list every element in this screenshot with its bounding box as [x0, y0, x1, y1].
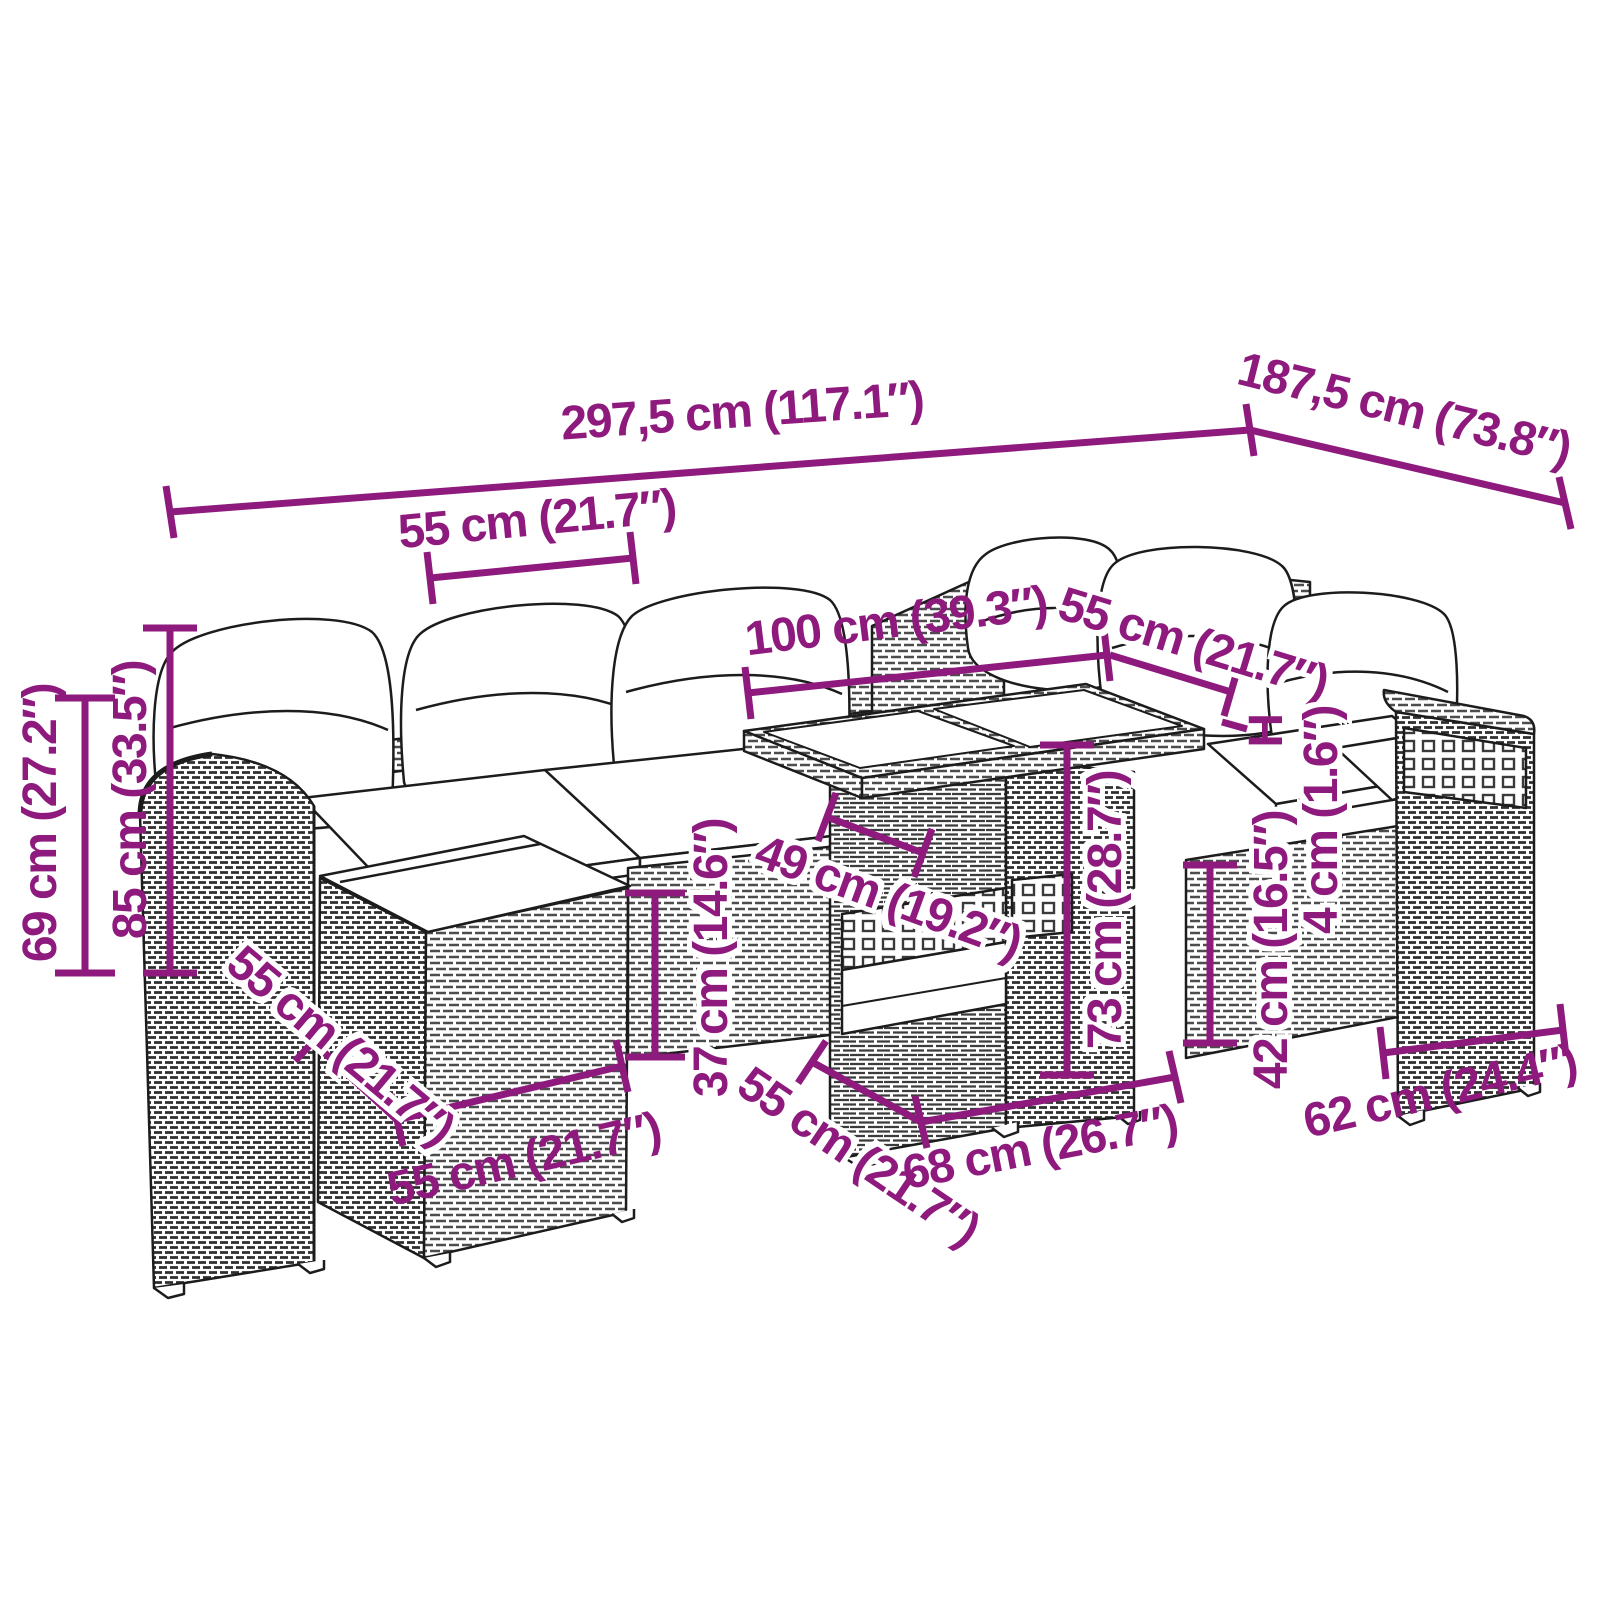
dim-label-total-height: 85 cm (33.5″)	[107, 661, 155, 939]
dim-label-table-height: 73 cm (28.7″)	[1082, 771, 1130, 1049]
dimension-diagram: 297,5 cm (117.1″) 187,5 cm (73.8″) 55 cm…	[0, 0, 1600, 1600]
dim-line-backrest-module	[430, 558, 633, 578]
dim-label-seat-height: 42 cm (16.5″)	[1248, 811, 1296, 1089]
dim-line-overall-width	[170, 430, 1250, 512]
dim-label-height-marker: H	[1243, 714, 1291, 747]
dim-label-ottoman-height: 37 cm (14.6″)	[688, 819, 736, 1097]
sofa-line-art	[0, 0, 1600, 1600]
dim-label-armrest-height: 69 cm (27.2″)	[17, 684, 65, 962]
dim-label-tabletop-gap: 4 cm (1.6″)	[1298, 706, 1346, 934]
